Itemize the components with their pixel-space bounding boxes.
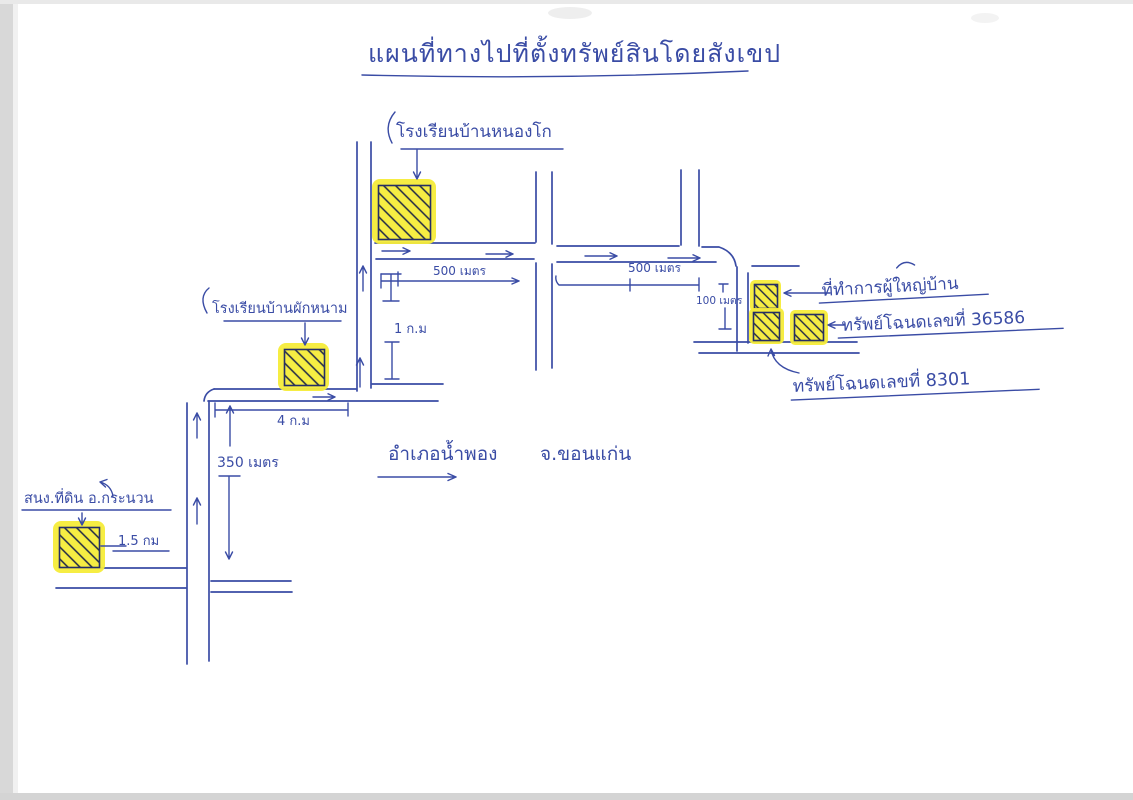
deed-36586-parcel — [790, 310, 828, 345]
dim-350m-label: 350 เมตร — [217, 455, 279, 471]
school-left-label: โรงเรียนบ้านผักหนาม — [212, 299, 348, 317]
land-office-label: สนง.ที่ดิน อ.กระนวน — [24, 488, 154, 507]
scan-smudge — [971, 13, 999, 23]
scan-edge-left — [0, 0, 13, 800]
district-label-amphoe: อำเภอน้ำพอง — [388, 440, 497, 465]
scan-smudge — [548, 7, 592, 19]
dim-4km-label: 4 ก.ม — [277, 414, 310, 429]
district-label-province: จ.ขอนแก่น — [540, 443, 631, 465]
school-left-building — [278, 343, 329, 391]
school-top-building — [372, 179, 436, 244]
land-office-building — [53, 521, 105, 573]
hatched-building-box — [755, 285, 778, 309]
hatched-building-box — [285, 350, 325, 386]
dim-100m-label: 100 เมตร — [696, 295, 743, 307]
hatched-building-box — [379, 186, 431, 240]
dim-1km-label: 1 ก.ม — [394, 322, 427, 337]
map-canvas: แผนที่ทางไปที่ตั้งทรัพย์สินโดยสังเขป — [0, 0, 1133, 800]
scanned-sketch-map-page: แผนที่ทางไปที่ตั้งทรัพย์สินโดยสังเขป — [0, 0, 1133, 800]
hatched-building-box — [60, 528, 100, 568]
hatched-building-box — [754, 313, 780, 341]
school-top-label: โรงเรียนบ้านหนองโก — [396, 121, 552, 142]
deed-8301-parcel — [749, 308, 784, 344]
paper-background — [0, 0, 1133, 800]
dim-500m-west-label: 500 เมตร — [433, 264, 487, 278]
map-title: แผนที่ทางไปที่ตั้งทรัพย์สินโดยสังเขป — [368, 35, 781, 68]
dim-500m-east-label: 500 เมตร — [628, 261, 682, 275]
scan-edge-top — [0, 0, 1133, 4]
hatched-building-box — [795, 315, 824, 341]
dim-1-5km-label: 1.5 กม — [118, 534, 159, 549]
village-office-building — [750, 280, 781, 312]
scan-edge-bottom — [0, 793, 1133, 800]
scan-edge-left-fade — [13, 0, 18, 800]
